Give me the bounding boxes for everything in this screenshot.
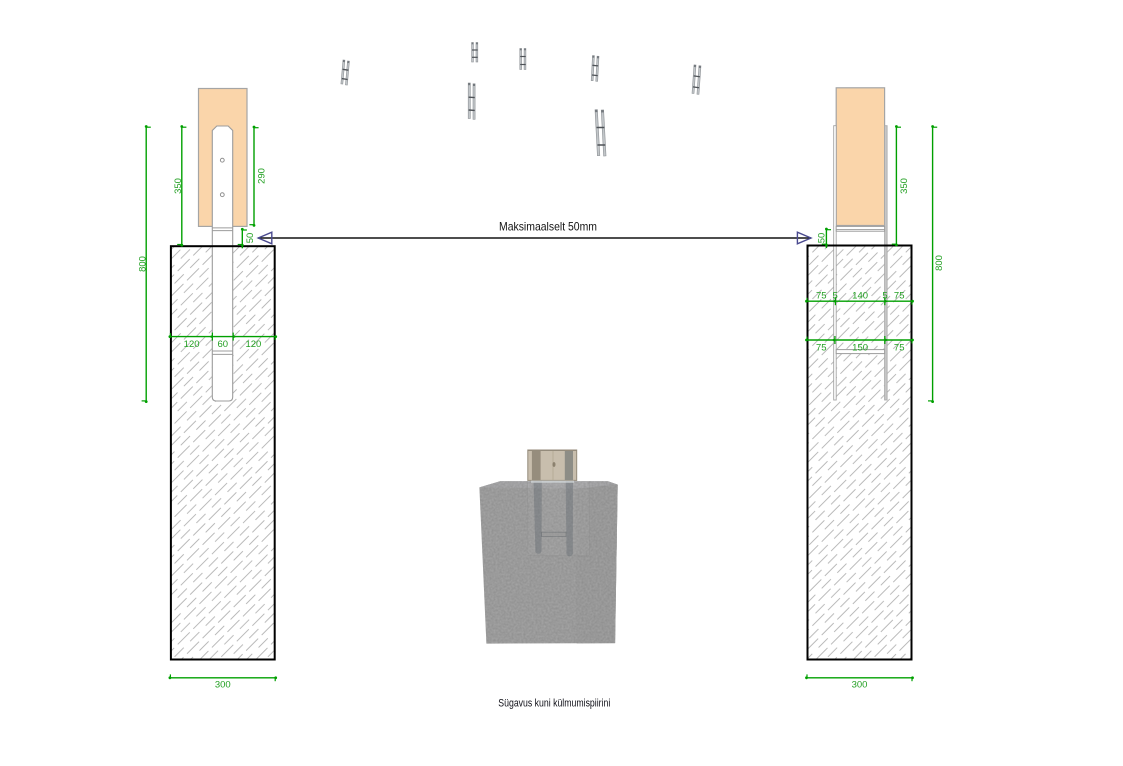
svg-text:140: 140 — [852, 291, 868, 302]
svg-text:800: 800 — [934, 255, 945, 271]
svg-text:75: 75 — [894, 291, 905, 302]
svg-text:60: 60 — [218, 339, 229, 350]
svg-text:120: 120 — [184, 339, 200, 350]
svg-text:75: 75 — [816, 291, 827, 302]
svg-text:150: 150 — [852, 342, 868, 353]
svg-text:75: 75 — [816, 342, 827, 353]
svg-text:75: 75 — [894, 342, 905, 353]
svg-text:290: 290 — [257, 168, 268, 184]
svg-text:Sügavus kuni külmumispiirini: Sügavus kuni külmumispiirini — [498, 698, 610, 710]
svg-text:120: 120 — [245, 339, 261, 350]
svg-text:50: 50 — [245, 233, 256, 244]
svg-text:Maksimaalselt 50mm: Maksimaalselt 50mm — [499, 221, 597, 234]
svg-text:300: 300 — [852, 680, 868, 691]
svg-text:5: 5 — [833, 291, 838, 302]
svg-text:800: 800 — [138, 256, 149, 272]
svg-text:50: 50 — [816, 233, 827, 244]
svg-text:300: 300 — [215, 680, 231, 691]
svg-text:5: 5 — [882, 291, 887, 302]
svg-text:350: 350 — [899, 178, 910, 194]
svg-text:350: 350 — [173, 178, 184, 194]
